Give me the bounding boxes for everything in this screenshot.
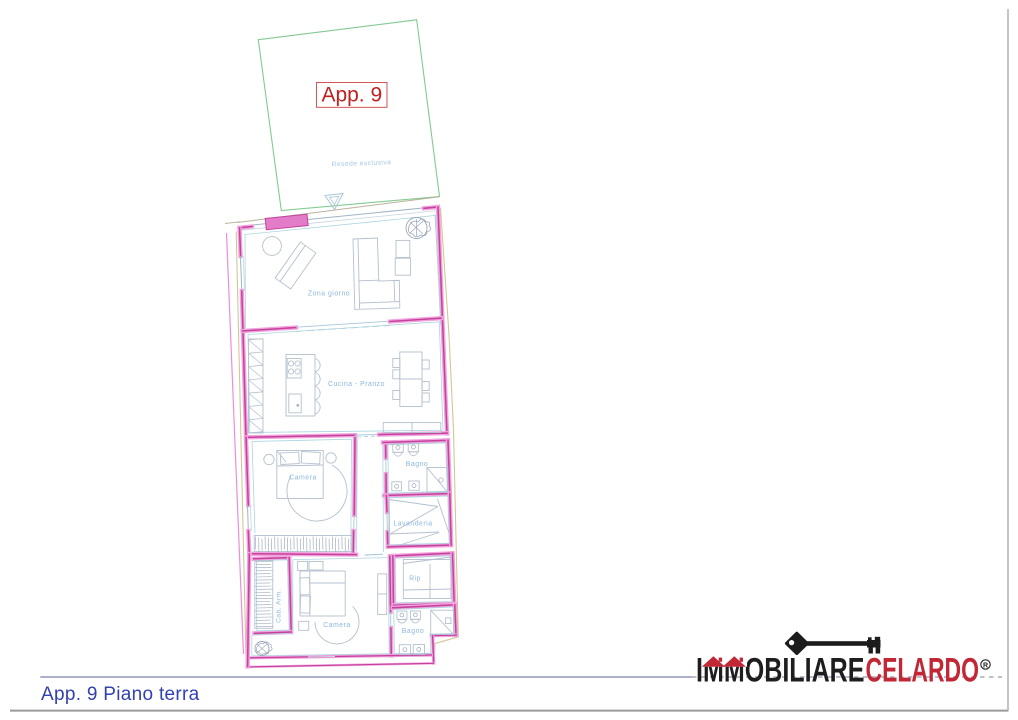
svg-text:Bagno: Bagno: [406, 461, 428, 468]
svg-text:App. 9 Piano terra: App. 9 Piano terra: [41, 684, 200, 705]
svg-text:Resede esclusiva: Resede esclusiva: [332, 159, 392, 168]
svg-text:R: R: [983, 662, 988, 669]
svg-text:Lavanderia: Lavanderia: [393, 521, 432, 528]
svg-text:Cab. Arm.: Cab. Arm.: [276, 589, 283, 623]
svg-text:CELARDO: CELARDO: [866, 652, 980, 690]
svg-text:Bagno: Bagno: [402, 628, 424, 635]
svg-text:Rip: Rip: [409, 576, 421, 583]
svg-text:Camera: Camera: [323, 622, 351, 629]
svg-text:Camera: Camera: [289, 475, 317, 482]
svg-text:App. 9: App. 9: [321, 84, 382, 107]
svg-text:Zona giorno: Zona giorno: [308, 291, 350, 298]
svg-text:Cucina - Pranzo: Cucina - Pranzo: [328, 381, 385, 388]
